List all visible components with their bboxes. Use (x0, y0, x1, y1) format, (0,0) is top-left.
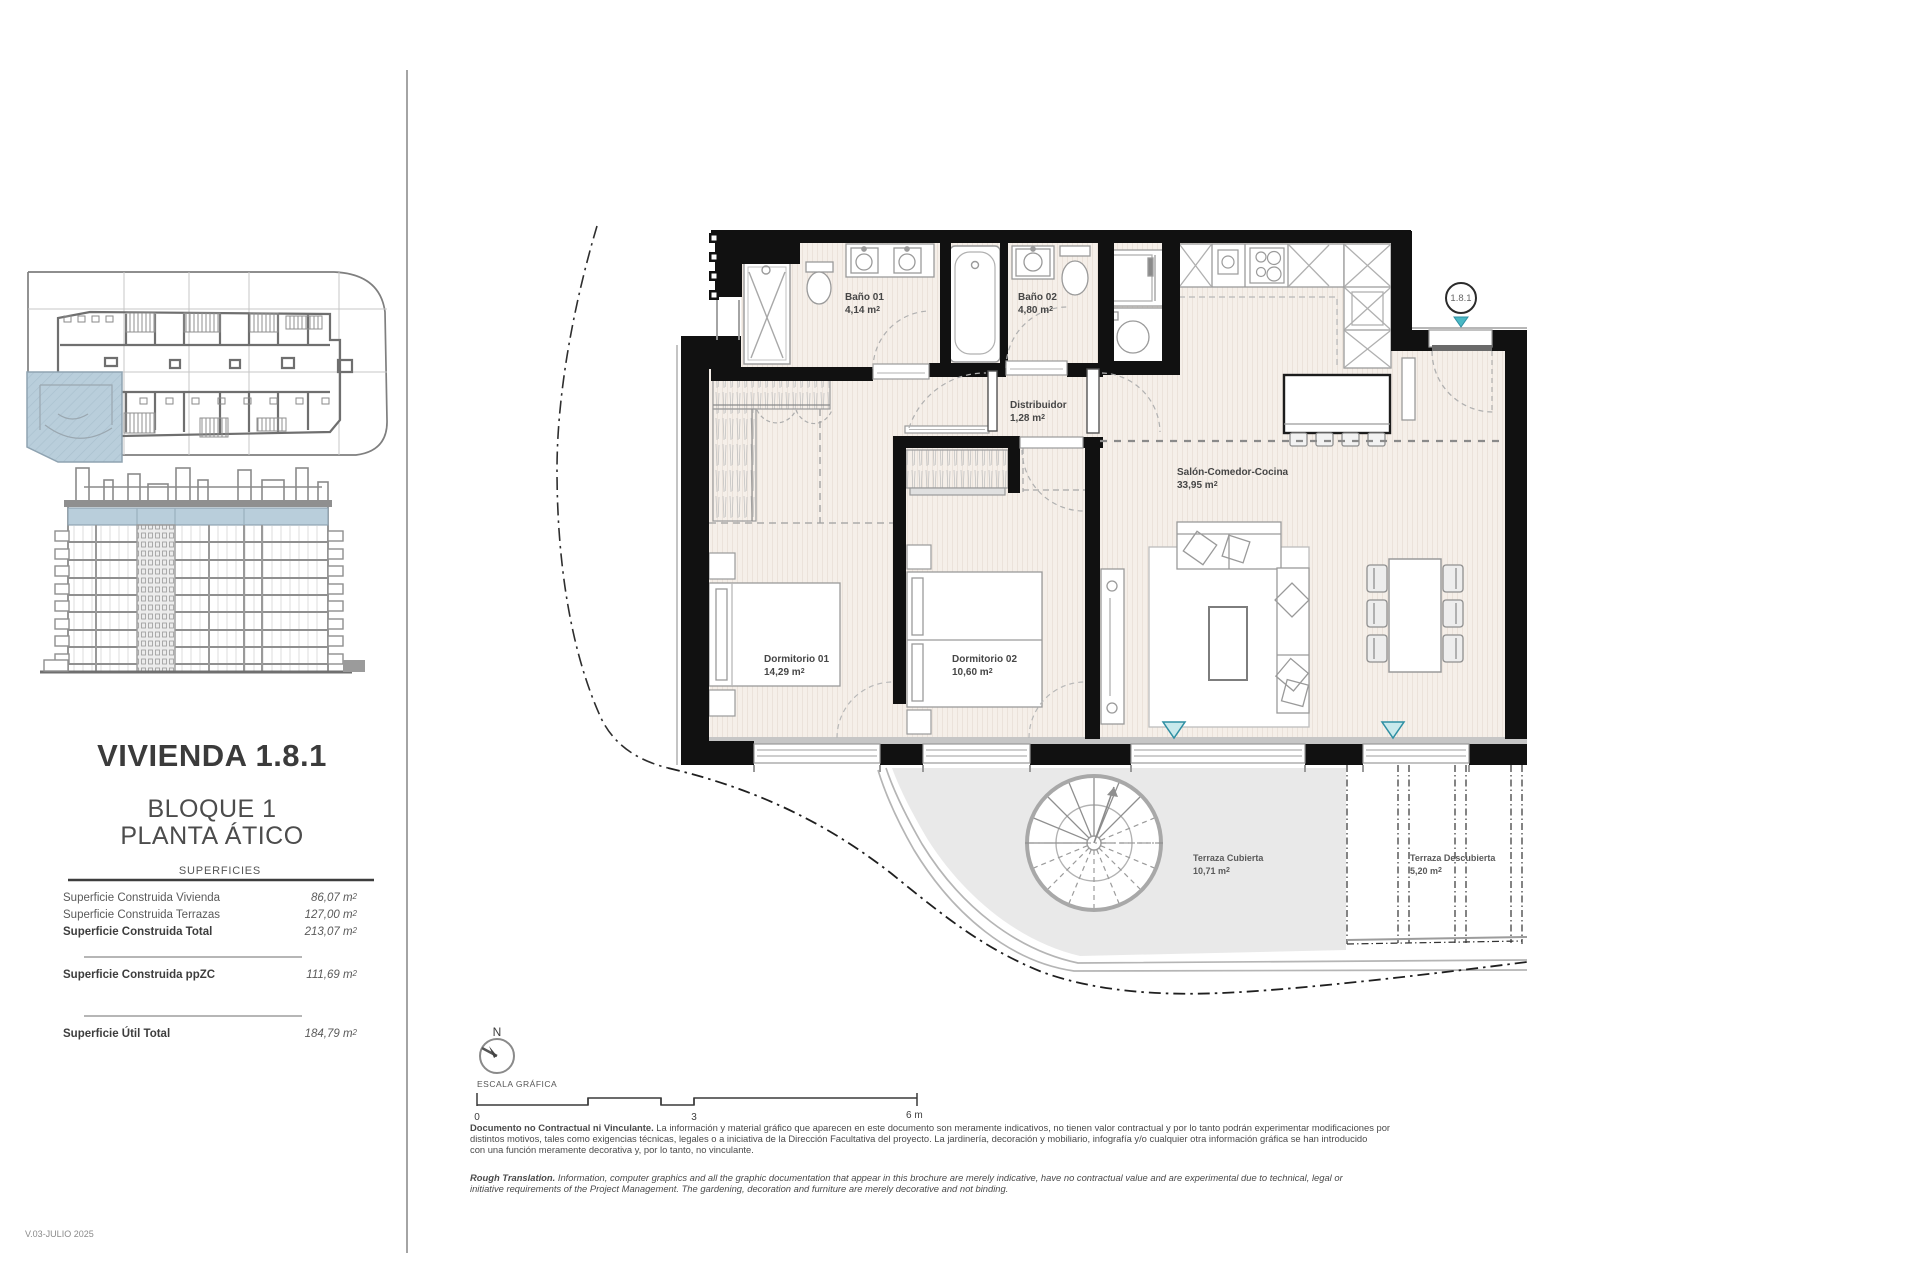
svg-text:33,95 m2: 33,95 m2 (1177, 480, 1218, 491)
svg-text:Dormitorio 01: Dormitorio 01 (764, 654, 829, 665)
svg-text:con una función meramente deco: con una función meramente decorativa y, … (470, 1144, 754, 1155)
svg-text:184,79 m2: 184,79 m2 (305, 1028, 358, 1040)
svg-text:initiative requirements of the: initiative requirements of the Project M… (470, 1183, 1008, 1194)
svg-text:Terraza Cubierta: Terraza Cubierta (1193, 853, 1264, 863)
svg-text:Baño 02: Baño 02 (1018, 292, 1057, 303)
svg-text:BLOQUE 1: BLOQUE 1 (147, 795, 276, 823)
svg-text:N: N (493, 1025, 502, 1039)
svg-text:213,07 m2: 213,07 m2 (304, 926, 358, 938)
svg-text:Dormitorio 02: Dormitorio 02 (952, 654, 1017, 665)
svg-text:distintos motivos, tales como: distintos motivos, tales como exigencias… (470, 1133, 1367, 1144)
svg-text:Superficie Construida Total: Superficie Construida Total (63, 926, 212, 938)
svg-text:86,07 m2: 86,07 m2 (311, 892, 358, 904)
svg-text:Superficie Construida ppZC: Superficie Construida ppZC (63, 969, 215, 981)
svg-text:4,14 m2: 4,14 m2 (845, 305, 880, 316)
svg-text:Documento no Contractual ni Vi: Documento no Contractual ni Vinculante. … (470, 1122, 1390, 1133)
svg-text:5,20 m2: 5,20 m2 (1410, 866, 1442, 876)
svg-text:Salón-Comedor-Cocina: Salón-Comedor-Cocina (1177, 467, 1289, 478)
svg-text:Rough Translation. Information: Rough Translation. Information, computer… (470, 1172, 1344, 1183)
svg-text:Superficie Útil Total: Superficie Útil Total (63, 1027, 170, 1040)
svg-text:Distribuidor: Distribuidor (1010, 400, 1067, 411)
svg-text:6 m: 6 m (906, 1110, 923, 1121)
svg-text:1,28 m2: 1,28 m2 (1010, 413, 1045, 424)
svg-text:10,71 m2: 10,71 m2 (1193, 866, 1230, 876)
svg-text:VIVIENDA 1.8.1: VIVIENDA 1.8.1 (97, 738, 327, 773)
svg-text:127,00 m2: 127,00 m2 (305, 909, 358, 921)
svg-text:1.8.1: 1.8.1 (1450, 293, 1471, 304)
svg-text:Terraza Descubierta: Terraza Descubierta (1410, 853, 1496, 863)
svg-text:10,60 m2: 10,60 m2 (952, 667, 993, 678)
svg-text:PLANTA ÁTICO: PLANTA ÁTICO (120, 821, 303, 850)
svg-text:Baño 01: Baño 01 (845, 292, 884, 303)
svg-text:111,69 m2: 111,69 m2 (306, 969, 357, 981)
svg-text:Superficie Construida Vivienda: Superficie Construida Vivienda (63, 892, 221, 904)
svg-text:V.03-JULIO 2025: V.03-JULIO 2025 (25, 1229, 94, 1239)
svg-text:ESCALA GRÁFICA: ESCALA GRÁFICA (477, 1079, 557, 1089)
svg-text:14,29 m2: 14,29 m2 (764, 667, 805, 678)
svg-text:SUPERFICIES: SUPERFICIES (179, 865, 261, 877)
svg-text:Superficie Construida Terrazas: Superficie Construida Terrazas (63, 909, 220, 921)
svg-text:4,80 m2: 4,80 m2 (1018, 305, 1053, 316)
